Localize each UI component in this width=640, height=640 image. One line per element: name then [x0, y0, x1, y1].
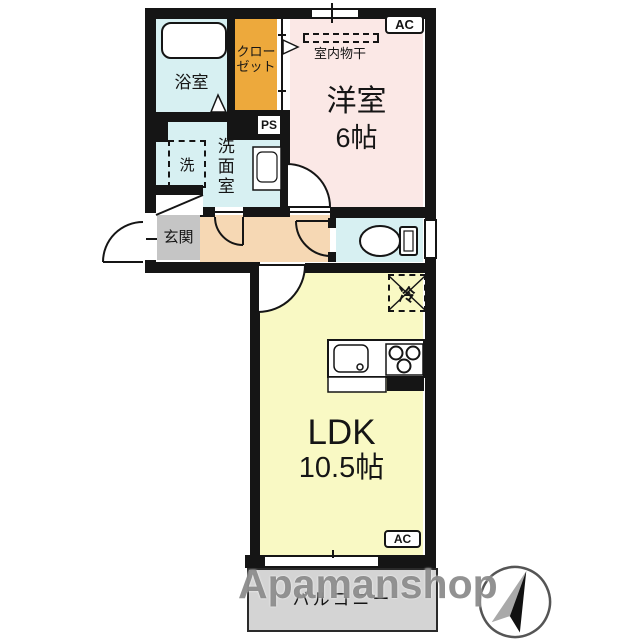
window-tick-bottom [332, 550, 334, 558]
genkan-label: 玄関 [157, 229, 200, 247]
closet-label-line1: クロー [236, 45, 275, 60]
ac-label-ldk: AC [394, 532, 411, 546]
threshold-washroom-door [215, 211, 243, 213]
ac-label-western: AC [395, 17, 414, 32]
window-toilet [424, 219, 437, 259]
washing-machine-label: 洗 [179, 154, 194, 175]
closet-label-line2: ゼット [236, 60, 275, 75]
toilet-floor [336, 218, 423, 262]
wall-upper-block-bottom [145, 262, 260, 273]
ac-box-ldk: AC [384, 530, 421, 548]
wall-bath-bottom [156, 112, 235, 122]
washroom-label: 洗面室 [211, 126, 237, 208]
drying-pole-icon [303, 33, 379, 43]
western-room-size: 6帖 [290, 122, 423, 156]
pipe-space-box: PS [256, 114, 282, 136]
refrigerator-box: 冷 [388, 274, 426, 312]
window-tick-top [331, 3, 333, 23]
washing-machine-box: 洗 [168, 140, 206, 188]
wall-toilet-stub-top [328, 218, 336, 228]
wall-hall-top-b [243, 207, 287, 217]
ldk-label: LDK [260, 413, 423, 453]
wall-right [425, 8, 436, 568]
threshold-west-door [287, 211, 330, 213]
apamanshop-watermark: Apamanshop [238, 561, 498, 608]
window-western-room [312, 8, 358, 19]
wall-west-bottom [330, 207, 436, 218]
drying-label: 室内物干 [298, 46, 382, 62]
closet-label: クロー ゼット [233, 38, 279, 82]
wall-hall-top-a [203, 207, 215, 217]
wall-left [145, 8, 156, 215]
closet-door-line [281, 19, 283, 110]
refrigerator-label: 冷 [399, 281, 416, 306]
closet-door-tick-bottom [278, 90, 286, 92]
closet-door-tick-top [278, 34, 286, 36]
hallway-floor [200, 215, 330, 262]
ac-box-western: AC [385, 15, 424, 34]
ldk-size: 10.5帖 [260, 452, 423, 486]
wall-toilet-stub-bottom [328, 252, 336, 262]
wall-washroom-stub [156, 122, 168, 142]
wall-ldk-left [250, 263, 260, 568]
western-room-label: 洋室 [290, 84, 423, 120]
entrance-door-opening [145, 213, 156, 260]
pipe-space-label: PS [261, 118, 277, 132]
bathroom-label: 浴室 [156, 72, 227, 94]
wall-ldk-top-b [305, 263, 436, 273]
entrance-nook [156, 195, 203, 215]
floorplan-canvas: PS AC AC 洗 冷 浴室 クロー ゼット 室内物干 洋室 6帖 洗面室 玄… [0, 0, 640, 640]
entrance-door-arc [103, 222, 143, 262]
bathtub [161, 22, 227, 59]
